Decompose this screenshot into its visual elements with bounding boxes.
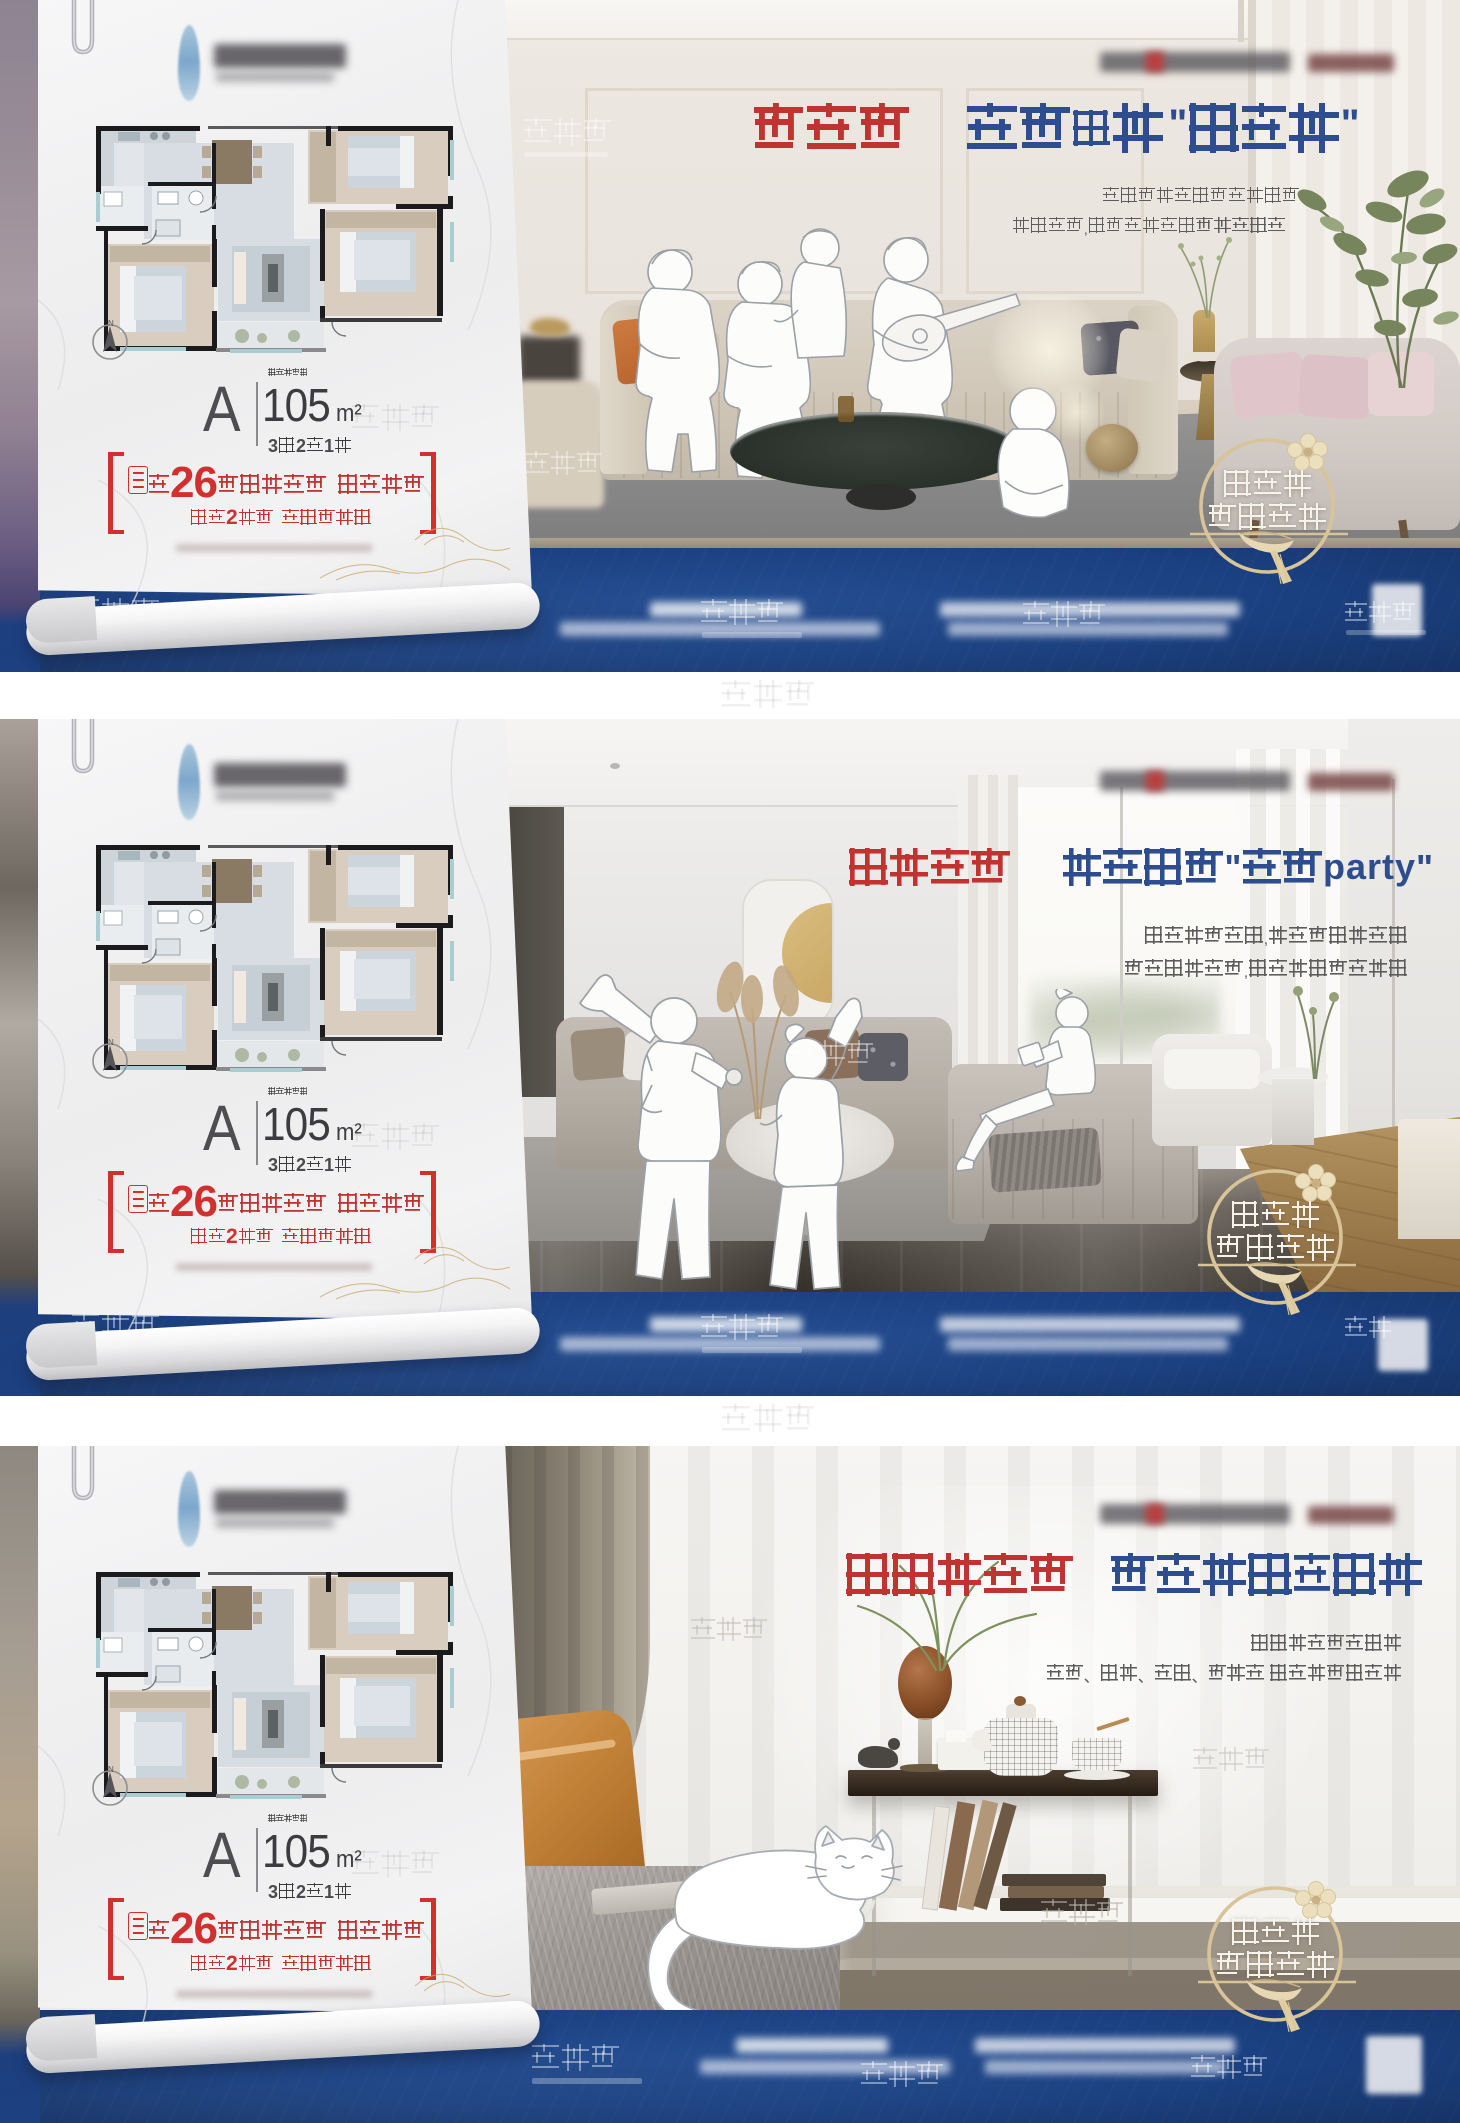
svg-text:N: N [108, 1765, 114, 1774]
svg-text:N: N [108, 319, 114, 328]
svg-text:N: N [108, 1038, 114, 1047]
